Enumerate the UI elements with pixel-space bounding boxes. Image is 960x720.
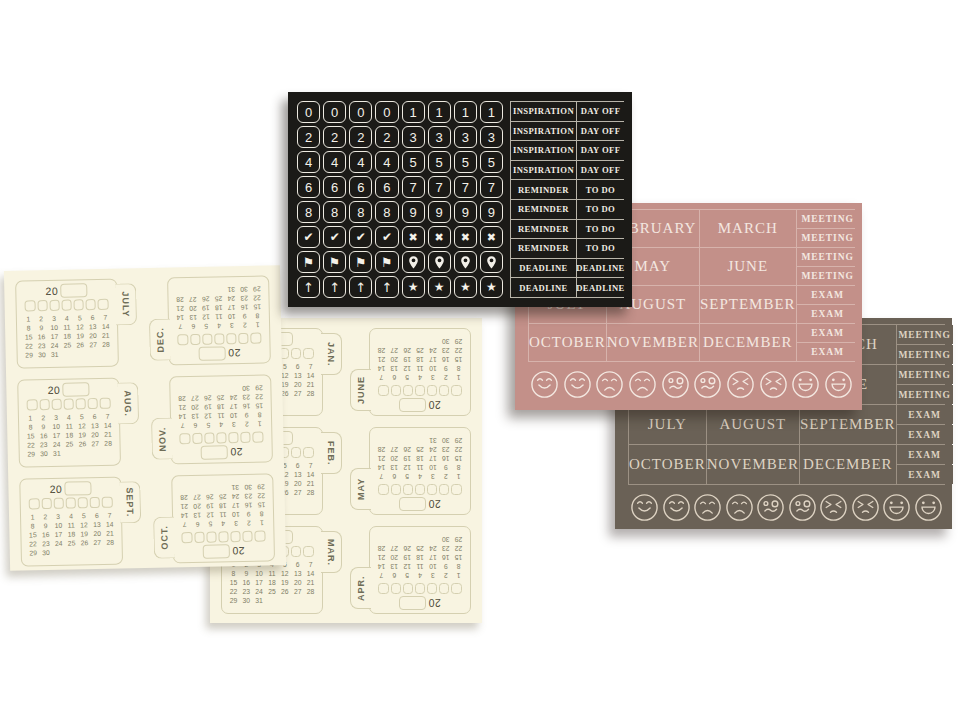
day-number: 7 <box>375 373 388 382</box>
day-number: 7 <box>99 312 112 321</box>
sticker-tile-number: 1 <box>480 101 503 123</box>
weekday-fill-in-box <box>25 300 36 311</box>
day-number: 22 <box>452 445 465 454</box>
weekday-fill-in-box <box>85 299 96 310</box>
month-tab: FEB. <box>321 432 342 474</box>
weekday-boxes <box>375 583 465 594</box>
day-number: 23 <box>35 341 48 350</box>
label-sticker: TO DO <box>577 200 624 219</box>
day-number: 8 <box>251 312 264 321</box>
sticker-tile-check-icon: ✔ <box>297 226 320 248</box>
year-header: 20 <box>179 543 269 559</box>
month-tab-label: MAR. <box>326 539 336 566</box>
month-tab-label: OCT. <box>159 525 170 550</box>
day-number: 17 <box>50 430 63 439</box>
tag-sticker: MEETING <box>897 365 953 384</box>
tag-sticker: MEETING <box>797 248 859 266</box>
day-number: 6 <box>191 520 204 529</box>
day-number: 7 <box>174 323 187 332</box>
year-header: 20 <box>375 398 465 412</box>
day-number: 20 <box>89 430 102 439</box>
year-prefix-label: 20 <box>232 545 245 557</box>
day-number: 2 <box>240 420 253 429</box>
day-number: 7 <box>178 520 191 529</box>
year-fill-in-box <box>203 544 230 559</box>
sticker-tile-number: 6 <box>323 176 346 198</box>
angry-face-icon <box>758 369 789 400</box>
day-number: 24 <box>225 294 238 303</box>
day-number: 25 <box>65 538 78 547</box>
day-number: 21 <box>375 355 388 364</box>
day-number: 9 <box>240 569 253 578</box>
day-number: 27 <box>388 346 401 355</box>
day-number: 10 <box>48 322 61 331</box>
tag-sticker: MEETING <box>897 325 953 344</box>
day-number: 20 <box>388 553 401 562</box>
day-number: 8 <box>227 569 240 578</box>
weekday-boxes <box>178 531 268 543</box>
weekday-fill-in-box <box>73 299 84 310</box>
day-number: 31 <box>253 596 266 605</box>
map-pin-icon <box>431 254 448 271</box>
day-number: 1 <box>251 321 264 330</box>
mini-calendar-sticker-may: MAY2012345678910111213141516171819202122… <box>369 427 471 515</box>
day-number: 18 <box>61 331 74 340</box>
tag-sticker: EXAM <box>797 305 859 323</box>
sticker-tile-number: 1 <box>402 101 425 123</box>
weekday-fill-in-box <box>415 583 426 594</box>
sticker-tile-number: 9 <box>428 201 451 223</box>
tag-sticker: MEETING <box>897 345 953 364</box>
day-number: 13 <box>388 364 401 373</box>
weekday-fill-in-box <box>206 532 217 543</box>
day-number: 3 <box>426 472 439 481</box>
sticker-tile-number: 1 <box>428 101 451 123</box>
weekday-fill-in-box <box>303 546 314 557</box>
day-number: 25 <box>414 346 427 355</box>
weekday-boxes <box>176 432 266 444</box>
day-number: 7 <box>304 461 317 470</box>
month-tab: JUNE <box>350 369 371 411</box>
month-sticker: NOVEMBER <box>707 445 799 484</box>
sticker-tile-x-icon: ✖ <box>454 226 477 248</box>
day-number: 16 <box>439 355 452 364</box>
day-number: 15 <box>24 431 37 440</box>
emoji-sticker-sad <box>692 492 723 523</box>
emoji-sticker-laugh <box>823 369 854 400</box>
day-number: 26 <box>203 493 216 502</box>
weekday-fill-in-box <box>77 497 88 508</box>
day-number: 21 <box>375 454 388 463</box>
day-number: 14 <box>375 562 388 571</box>
day-number: 18 <box>266 578 279 587</box>
day-number: 23 <box>37 440 50 449</box>
day-number: 2 <box>242 519 255 528</box>
weekday-fill-in-box <box>214 334 225 345</box>
tag-sticker: MEETING <box>797 229 859 247</box>
day-number: 30 <box>240 596 253 605</box>
day-number: 24 <box>50 439 63 448</box>
label-sticker: DEADLINE <box>511 278 576 297</box>
weekday-fill-in-box <box>415 484 426 495</box>
day-number: 10 <box>253 569 266 578</box>
day-number: 13 <box>291 371 304 380</box>
day-number-grid: 1234567891011121314151617181920212223242… <box>173 285 264 332</box>
month-tab-label: MAY <box>356 478 366 500</box>
day-number: 28 <box>99 339 112 348</box>
day-number: 3 <box>228 420 241 429</box>
day-number: 18 <box>216 502 229 511</box>
sticker-tile-number: 6 <box>297 176 320 198</box>
day-number: 31 <box>426 436 439 445</box>
weekday-fill-in-box <box>204 433 215 444</box>
tag-sticker: EXAM <box>797 324 859 342</box>
month-tab: SEPT. <box>119 481 141 523</box>
sticker-tile-number: 4 <box>297 151 320 173</box>
year-header: 20 <box>375 596 465 610</box>
day-number: 22 <box>452 346 465 355</box>
day-number: 12 <box>401 364 414 373</box>
day-number: 11 <box>414 463 427 472</box>
day-number: 10 <box>426 562 439 571</box>
day-number: 6 <box>86 313 99 322</box>
day-number: 27 <box>186 295 199 304</box>
day-number: 1 <box>452 571 465 580</box>
day-number: 10 <box>225 312 238 321</box>
day-number: 18 <box>414 553 427 562</box>
day-number: 14 <box>176 412 189 421</box>
weekday-fill-in-box <box>427 583 438 594</box>
laugh-face-icon <box>823 369 854 400</box>
weekday-fill-in-box <box>87 398 98 409</box>
day-number: 23 <box>439 544 452 553</box>
day-number: 14 <box>99 321 112 330</box>
day-number: 8 <box>26 521 39 530</box>
sticker-tile-arrow-up-icon: ↑ <box>375 276 398 298</box>
emoji-sticker-laugh <box>881 492 912 523</box>
day-number: 15 <box>452 355 465 364</box>
day-number-grid: 1234567891011121314151617181920212223242… <box>22 312 113 359</box>
day-number: 27 <box>388 544 401 553</box>
label-sticker: REMINDER <box>511 220 576 239</box>
mini-calendar-sticker-aug: AUG.201234567891011121314151617181920212… <box>17 378 121 468</box>
month-tab: OCT. <box>153 516 175 558</box>
sad-face-icon <box>724 492 755 523</box>
day-number: 29 <box>27 548 40 557</box>
day-number-grid: 1234567891011121314151617181920212223242… <box>375 436 465 481</box>
sticker-tile-pin-icon <box>454 251 477 273</box>
day-number: 6 <box>90 510 103 519</box>
angry-face-icon <box>850 492 881 523</box>
sticker-tile-number: 8 <box>297 201 320 223</box>
day-number: 13 <box>388 463 401 472</box>
emoji-sticker-row <box>528 369 855 400</box>
day-number: 21 <box>99 330 112 339</box>
weekday-fill-in-box <box>250 333 261 344</box>
sticker-tile-number: 0 <box>297 101 320 123</box>
day-number: 6 <box>88 412 101 421</box>
day-number: 21 <box>101 429 114 438</box>
sticker-tile-number: 4 <box>349 151 372 173</box>
day-number: 22 <box>22 341 35 350</box>
weekday-fill-in-box <box>415 385 426 396</box>
day-number: 22 <box>27 539 40 548</box>
weekday-fill-in-box <box>37 300 48 311</box>
day-number: 27 <box>190 493 203 502</box>
sticker-tile-number: 7 <box>402 176 425 198</box>
day-number: 15 <box>26 530 39 539</box>
weekday-fill-in-box <box>90 497 101 508</box>
weekday-fill-in-box <box>439 385 450 396</box>
smile-face-icon <box>661 492 692 523</box>
sticker-tile-number: 2 <box>349 126 372 148</box>
planner-sticker-sheets-photo: JAN.201234567891011121314151617181920212… <box>0 0 960 720</box>
day-number: 11 <box>214 412 227 421</box>
day-number: 12 <box>204 511 217 520</box>
day-number: 20 <box>291 578 304 587</box>
label-sticker: DEADLINE <box>577 259 624 278</box>
month-tab: AUG. <box>117 382 139 424</box>
month-tab-label: JUNE <box>356 376 366 404</box>
emoji-sticker-silly <box>787 492 818 523</box>
day-number: 18 <box>414 355 427 364</box>
tag-sticker: MEETING <box>897 385 953 404</box>
day-number: 12 <box>200 313 213 322</box>
month-sticker: MARCH <box>700 210 796 247</box>
number-icon-tile-grid: 0000111122223333444455556666777788889999… <box>297 101 503 298</box>
weekday-fill-in-box <box>75 398 86 409</box>
weekday-fill-in-box <box>218 532 229 543</box>
label-sticker: TO DO <box>577 180 624 199</box>
day-number: 5 <box>75 412 88 421</box>
day-number: 4 <box>414 571 427 580</box>
label-sticker: DAY OFF <box>577 141 624 160</box>
year-prefix-label: 20 <box>428 498 441 510</box>
day-number: 13 <box>90 519 103 528</box>
weekday-fill-in-box <box>41 498 52 509</box>
day-number: 7 <box>375 472 388 481</box>
day-number: 21 <box>375 553 388 562</box>
year-header: 20 <box>21 283 111 299</box>
day-number-grid: 1234567891011121314151617181920212223242… <box>24 411 115 458</box>
day-number: 11 <box>414 364 427 373</box>
tag-sticker: EXAM <box>897 405 953 424</box>
sticker-tile-flag-icon: ⚑ <box>297 251 320 273</box>
emoji-sticker-row <box>628 492 945 523</box>
sticker-tile-star-icon: ★ <box>428 276 451 298</box>
day-number: 19 <box>76 430 89 439</box>
day-number: 17 <box>52 529 65 538</box>
day-number: 20 <box>189 403 202 412</box>
day-number: 13 <box>388 562 401 571</box>
year-prefix-label: 20 <box>230 446 243 458</box>
day-number: 16 <box>39 530 52 539</box>
day-number: 2 <box>35 314 48 323</box>
day-number: 6 <box>291 560 304 569</box>
day-number: 24 <box>426 544 439 553</box>
day-number: 22 <box>251 294 264 303</box>
sticker-tile-number: 4 <box>323 151 346 173</box>
day-number: 11 <box>217 511 230 520</box>
sticker-tile-number: 5 <box>454 151 477 173</box>
map-pin-icon <box>483 254 500 271</box>
day-number: 6 <box>291 461 304 470</box>
weekday-fill-in-box <box>391 385 402 396</box>
sticker-tile-number: 3 <box>428 126 451 148</box>
month-tab-label: SEPT. <box>124 487 135 517</box>
day-number: 26 <box>278 587 291 596</box>
year-header: 20 <box>25 481 115 497</box>
weekday-fill-in-box <box>29 498 40 509</box>
day-number: 5 <box>401 472 414 481</box>
mini-calendar-sticker-dec: DEC.201234567891011121314151617181920212… <box>167 275 271 365</box>
tag-sticker: EXAM <box>897 425 953 444</box>
weekday-fill-in-box <box>238 333 249 344</box>
weekday-fill-in-box <box>216 433 227 444</box>
day-number: 22 <box>227 587 240 596</box>
sticker-tile-check-icon: ✔ <box>375 226 398 248</box>
day-number: 6 <box>388 373 401 382</box>
weekday-fill-in-box <box>291 348 302 359</box>
day-number: 30 <box>439 337 452 346</box>
day-number: 4 <box>64 511 77 520</box>
day-number: 16 <box>35 332 48 341</box>
day-number: 13 <box>291 470 304 479</box>
emoji-sticker-sad <box>724 492 755 523</box>
day-number: 30 <box>439 436 452 445</box>
weekday-fill-in-box <box>61 300 72 311</box>
sticker-tile-number: 1 <box>454 101 477 123</box>
day-number: 16 <box>439 553 452 562</box>
sticker-tile-number: 2 <box>375 126 398 148</box>
calendar-sticker-sheet-jul-dec: JULY201234567891011121314151617181920212… <box>4 265 286 571</box>
weekday-fill-in-box <box>51 399 62 410</box>
month-tab-label: DEC. <box>155 327 166 353</box>
weekday-fill-in-box <box>378 484 389 495</box>
weekday-fill-in-box <box>192 433 203 444</box>
day-number: 22 <box>24 440 37 449</box>
silly-face-icon <box>787 492 818 523</box>
day-number: 6 <box>291 362 304 371</box>
sticker-tile-number: 3 <box>480 126 503 148</box>
year-header: 20 <box>23 382 113 398</box>
emoji-sticker-smile <box>562 369 593 400</box>
emoji-sticker-smile <box>629 492 660 523</box>
day-number: 25 <box>216 493 229 502</box>
day-number: 20 <box>191 502 204 511</box>
weekday-boxes <box>22 299 112 311</box>
weekday-fill-in-box <box>403 385 414 396</box>
day-number: 26 <box>201 394 214 403</box>
weekday-fill-in-box <box>391 583 402 594</box>
weekday-fill-in-box <box>190 334 201 345</box>
mini-calendar-sticker-sept: SEPT.20123456789101112131415161718192021… <box>19 477 123 567</box>
day-number: 3 <box>426 571 439 580</box>
day-number: 12 <box>401 562 414 571</box>
weekday-fill-in-box <box>451 583 462 594</box>
day-number: 24 <box>52 538 65 547</box>
day-number: 29 <box>227 596 240 605</box>
day-number: 28 <box>375 445 388 454</box>
weekday-fill-in-box <box>194 532 205 543</box>
emoji-sticker-sad <box>627 369 658 400</box>
weekday-fill-in-box <box>63 398 74 409</box>
day-number: 26 <box>401 544 414 553</box>
weekday-fill-in-box <box>451 484 462 495</box>
weekday-fill-in-box <box>102 497 113 508</box>
day-number: 9 <box>439 562 452 571</box>
year-fill-in-box <box>64 481 91 496</box>
day-number: 13 <box>86 322 99 331</box>
day-number: 31 <box>50 448 63 457</box>
label-sticker: DEADLINE <box>577 278 624 297</box>
day-number: 29 <box>25 449 38 458</box>
day-number: 12 <box>75 421 88 430</box>
day-number: 14 <box>375 463 388 472</box>
sticker-tile-number: 2 <box>323 126 346 148</box>
laugh-face-icon <box>881 492 912 523</box>
day-number: 3 <box>225 321 238 330</box>
day-number: 7 <box>304 560 317 569</box>
weekday-fill-in-box <box>252 432 263 443</box>
day-number: 26 <box>76 439 89 448</box>
sticker-tile-number: 7 <box>428 176 451 198</box>
calendar-sticker-pair: AUG.201234567891011121314151617181920212… <box>17 374 273 467</box>
day-number: 17 <box>225 303 238 312</box>
day-number: 24 <box>229 492 242 501</box>
calendar-sticker-pair: SEPT.20123456789101112131415161718192021… <box>19 473 275 566</box>
sad-face-icon <box>692 492 723 523</box>
sticker-tile-number: 8 <box>323 201 346 223</box>
day-number: 24 <box>48 340 61 349</box>
day-number: 10 <box>426 463 439 472</box>
year-prefix-label: 20 <box>428 597 441 609</box>
day-number: 8 <box>22 323 35 332</box>
day-number: 7 <box>103 510 116 519</box>
day-number: 23 <box>240 393 253 402</box>
sticker-tile-number: 5 <box>480 151 503 173</box>
month-sticker: OCTOBER <box>529 324 606 361</box>
day-number: 6 <box>388 472 401 481</box>
day-number: 10 <box>52 520 65 529</box>
year-prefix-label: 20 <box>47 384 60 396</box>
day-number: 30 <box>238 285 251 294</box>
day-number: 19 <box>401 454 414 463</box>
day-number: 2 <box>439 373 452 382</box>
day-number: 26 <box>401 346 414 355</box>
day-number: 31 <box>229 483 242 492</box>
weekday-fill-in-box <box>53 498 64 509</box>
sticker-tile-number: 5 <box>402 151 425 173</box>
day-number: 5 <box>200 322 213 331</box>
emoji-sticker-silly <box>692 369 723 400</box>
day-number: 4 <box>414 472 427 481</box>
emoji-sticker-angry <box>850 492 881 523</box>
day-number: 1 <box>253 420 266 429</box>
year-prefix-label: 20 <box>228 347 241 359</box>
sticker-tile-number: 5 <box>428 151 451 173</box>
month-tab-label: JAN. <box>326 342 336 367</box>
day-number: 19 <box>74 331 87 340</box>
sticker-tile-number: 4 <box>375 151 398 173</box>
month-sticker: DECEMBER <box>700 324 796 361</box>
weekday-boxes <box>174 333 264 345</box>
sad-face-icon <box>594 369 625 400</box>
day-number: 4 <box>414 373 427 382</box>
day-number: 11 <box>63 421 76 430</box>
weekday-fill-in-box <box>303 348 314 359</box>
day-number: 19 <box>199 304 212 313</box>
